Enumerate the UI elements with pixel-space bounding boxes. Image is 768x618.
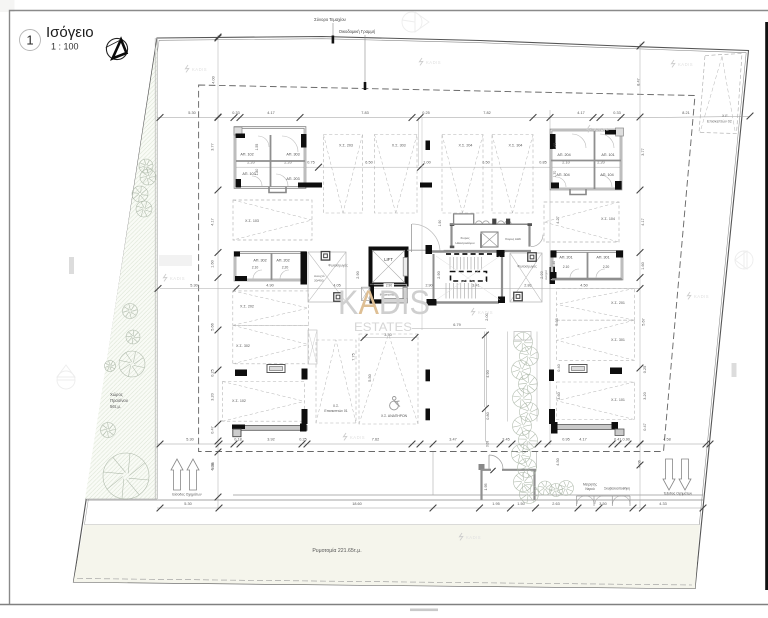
svg-text:0.40: 0.40 (557, 364, 561, 371)
svg-text:4.50: 4.50 (580, 283, 587, 287)
svg-text:3.77: 3.77 (211, 143, 215, 150)
svg-text:Σκυβαλοαποθήκη: Σκυβαλοαποθήκη (604, 487, 630, 491)
svg-text:4.00: 4.00 (212, 76, 216, 83)
svg-text:1.80: 1.80 (255, 169, 259, 176)
svg-text:1.70: 1.70 (553, 171, 557, 178)
svg-text:ΑΠ. 201: ΑΠ. 201 (559, 256, 572, 260)
svg-text:Χ.Σ. 202: Χ.Σ. 202 (240, 305, 254, 309)
svg-text:Σύνορο Τεμαχίου: Σύνορο Τεμαχίου (314, 17, 346, 22)
svg-text:KADIS: KADIS (426, 60, 441, 65)
svg-text:Χ.Σ. 204: Χ.Σ. 204 (459, 144, 473, 148)
svg-text:Ανοιχτό: Ανοιχτό (544, 270, 548, 280)
svg-text:Χ.Σ. 104: Χ.Σ. 104 (601, 217, 615, 221)
svg-text:Χ.Σ. ΑΝΑΠΗΡΩΝ: Χ.Σ. ΑΝΑΠΗΡΩΝ (381, 414, 408, 418)
svg-text:1.65: 1.65 (553, 143, 557, 150)
svg-text:KADIS: KADIS (338, 284, 430, 322)
svg-text:3.08: 3.08 (486, 441, 490, 447)
svg-text:Χ.Σ. 201: Χ.Σ. 201 (611, 301, 625, 305)
svg-text:5.50: 5.50 (368, 374, 372, 381)
svg-text:0.25: 0.25 (643, 366, 647, 373)
svg-text:KADIS: KADIS (192, 67, 207, 72)
svg-text:KADIS: KADIS (350, 435, 365, 440)
svg-text:18.60: 18.60 (352, 502, 362, 506)
svg-text:1: 1 (26, 33, 33, 48)
svg-text:7.62: 7.62 (372, 438, 379, 442)
svg-text:2.86: 2.86 (524, 283, 531, 287)
svg-text:KADIS: KADIS (170, 276, 185, 281)
svg-text:Μετρητής: Μετρητής (583, 483, 597, 487)
svg-text:KADIS: KADIS (466, 535, 481, 540)
svg-text:4.17: 4.17 (211, 218, 215, 225)
svg-text:5.66: 5.66 (211, 323, 215, 330)
svg-text:0.75: 0.75 (307, 161, 314, 165)
svg-text:KADIS: KADIS (478, 310, 493, 315)
svg-text:3.45: 3.45 (502, 438, 509, 442)
svg-text:Χ.Ε.: Χ.Ε. (722, 114, 729, 118)
svg-text:4.58: 4.58 (663, 438, 670, 442)
svg-text:1.95: 1.95 (484, 484, 488, 491)
svg-text:1.50: 1.50 (517, 502, 524, 506)
svg-text:ΑΠ. 104: ΑΠ. 104 (600, 173, 613, 177)
svg-text:Χ.Σ. 301: Χ.Σ. 301 (611, 338, 625, 342)
svg-text:0.95: 0.95 (562, 438, 569, 442)
svg-text:4.27: 4.27 (556, 216, 560, 223)
svg-text:2.90: 2.90 (356, 271, 360, 278)
svg-text:5.30: 5.30 (190, 283, 197, 287)
svg-text:8.21: 8.21 (682, 111, 689, 115)
svg-text:Χώρος: Χώρος (110, 392, 123, 397)
svg-text:56τ.μ.: 56τ.μ. (110, 404, 121, 409)
svg-text:Έξοδος Οχημάτων: Έξοδος Οχημάτων (663, 492, 692, 496)
svg-text:1.60: 1.60 (211, 260, 215, 267)
svg-text:4.17: 4.17 (267, 111, 274, 115)
svg-text:5.30: 5.30 (186, 438, 193, 442)
svg-text:1 : 100: 1 : 100 (51, 42, 79, 52)
svg-text:Χώρος ΑΗΚ: Χώρος ΑΗΚ (505, 237, 521, 241)
svg-text:Χ.Σ. 103: Χ.Σ. 103 (245, 219, 259, 223)
svg-text:30/400: 30/400 (314, 279, 324, 283)
svg-text:Φωτοαγωγός: Φωτοαγωγός (517, 265, 537, 269)
svg-text:ΑΠ. 203: ΑΠ. 203 (286, 177, 299, 181)
svg-text:ΑΠ. 202: ΑΠ. 202 (276, 259, 289, 263)
svg-text:3.47: 3.47 (449, 438, 456, 442)
svg-text:Χώρος: Χώρος (460, 236, 470, 240)
svg-text:KADIS: KADIS (694, 294, 709, 299)
svg-text:LIFT: LIFT (384, 257, 393, 262)
svg-text:ΑΠ. 303: ΑΠ. 303 (286, 153, 299, 157)
svg-text:ΑΠ. 301: ΑΠ. 301 (596, 256, 609, 260)
svg-text:4.17: 4.17 (577, 111, 584, 115)
svg-text:1.95: 1.95 (492, 502, 499, 506)
svg-text:0.85: 0.85 (539, 161, 546, 165)
svg-text:3.92: 3.92 (267, 438, 274, 442)
svg-text:5.30: 5.30 (184, 502, 191, 506)
svg-text:7.83: 7.83 (361, 111, 368, 115)
svg-text:ΑΠ. 101: ΑΠ. 101 (601, 153, 614, 157)
svg-text:Είσοδος Οχημάτων: Είσοδος Οχημάτων (172, 493, 201, 497)
svg-text:4.08: 4.08 (211, 462, 215, 469)
svg-text:4.33: 4.33 (659, 502, 666, 506)
svg-text:KADIS: KADIS (594, 127, 609, 132)
svg-text:5.30: 5.30 (188, 111, 195, 115)
svg-text:1.40: 1.40 (552, 261, 556, 267)
svg-text:2.63: 2.63 (552, 502, 559, 506)
svg-text:2.10: 2.10 (563, 265, 570, 269)
svg-text:0.80: 0.80 (486, 412, 490, 419)
svg-text:1.00: 1.00 (423, 161, 430, 165)
svg-text:2.90: 2.90 (437, 271, 441, 278)
svg-text:6.79: 6.79 (453, 323, 460, 327)
svg-text:0.25: 0.25 (211, 369, 215, 376)
svg-text:ΑΠ. 103: ΑΠ. 103 (242, 172, 255, 176)
svg-text:4.06: 4.06 (638, 460, 642, 467)
svg-text:Χ.Σ.: Χ.Σ. (333, 404, 339, 408)
svg-text:Ανοιχτό: Ανοιχτό (314, 274, 325, 278)
svg-text:0.33: 0.33 (613, 111, 620, 115)
svg-text:3.77: 3.77 (641, 148, 645, 155)
svg-text:Επισκεπτών 02: Επισκεπτών 02 (707, 120, 732, 124)
svg-text:Χ.Σ. 304: Χ.Σ. 304 (509, 144, 523, 148)
svg-text:KADIS: KADIS (678, 62, 693, 67)
svg-text:ΑΠ. 302: ΑΠ. 302 (253, 259, 266, 263)
svg-text:3.20: 3.20 (643, 392, 647, 399)
svg-text:0.25: 0.25 (422, 111, 429, 115)
svg-text:4.17: 4.17 (641, 218, 645, 225)
svg-text:Ηλεκτρολόγου: Ηλεκτρολόγου (456, 241, 475, 245)
svg-text:2.20: 2.20 (282, 266, 289, 270)
svg-text:6.50: 6.50 (482, 161, 489, 165)
svg-text:Νερού: Νερού (585, 487, 595, 491)
svg-text:Φωτοαγωγός: Φωτοαγωγός (328, 264, 348, 268)
svg-text:ΑΠ. 204: ΑΠ. 204 (557, 153, 570, 157)
svg-text:2.20: 2.20 (603, 265, 610, 269)
svg-text:4.90: 4.90 (266, 283, 273, 287)
svg-text:1.55: 1.55 (255, 144, 259, 151)
svg-text:3.50: 3.50 (599, 502, 606, 506)
svg-text:0.47: 0.47 (643, 423, 647, 430)
svg-text:3.20: 3.20 (211, 393, 215, 400)
svg-text:0.47: 0.47 (211, 426, 215, 433)
svg-text:4.50: 4.50 (556, 458, 560, 465)
svg-text:6.50: 6.50 (365, 161, 372, 165)
svg-text:Πρασίνου: Πρασίνου (110, 398, 129, 403)
svg-text:Ισόγειο: Ισόγειο (46, 24, 94, 41)
svg-text:Χ.Σ. 101: Χ.Σ. 101 (611, 398, 625, 402)
svg-text:5.67: 5.67 (642, 318, 646, 325)
svg-text:Επισκεπτών 01: Επισκεπτών 01 (324, 409, 347, 413)
svg-text:1.60: 1.60 (641, 262, 645, 269)
svg-text:Ρυμοτομία 221.65τ.μ.: Ρυμοτομία 221.65τ.μ. (312, 548, 361, 554)
svg-text:Χ.Σ. 303: Χ.Σ. 303 (392, 144, 406, 148)
svg-text:0.25: 0.25 (299, 438, 306, 442)
svg-text:ESTATES: ESTATES (354, 320, 412, 334)
svg-text:Χ.Σ. 302: Χ.Σ. 302 (236, 344, 250, 348)
svg-text:Χ.Σ. 102: Χ.Σ. 102 (232, 399, 246, 403)
svg-text:8.47: 8.47 (637, 78, 641, 85)
svg-text:5.66: 5.66 (555, 318, 559, 325)
svg-text:0.33: 0.33 (232, 111, 239, 115)
svg-text:7.75: 7.75 (352, 353, 356, 360)
svg-text:ΑΠ. 102: ΑΠ. 102 (240, 153, 253, 157)
svg-text:0.18: 0.18 (234, 438, 241, 442)
svg-text:3.60: 3.60 (557, 392, 561, 399)
svg-text:1.90: 1.90 (438, 220, 442, 227)
svg-text:2.10: 2.10 (252, 266, 259, 270)
svg-text:Οικοδομική Γραμμή: Οικοδομική Γραμμή (339, 29, 376, 34)
svg-text:ΑΠ. 304: ΑΠ. 304 (556, 173, 569, 177)
svg-text:7.82: 7.82 (483, 111, 490, 115)
svg-text:Χ.Σ. 203: Χ.Σ. 203 (339, 144, 353, 148)
svg-text:0.41 0.90: 0.41 0.90 (614, 438, 630, 442)
svg-text:4.17: 4.17 (579, 438, 586, 442)
